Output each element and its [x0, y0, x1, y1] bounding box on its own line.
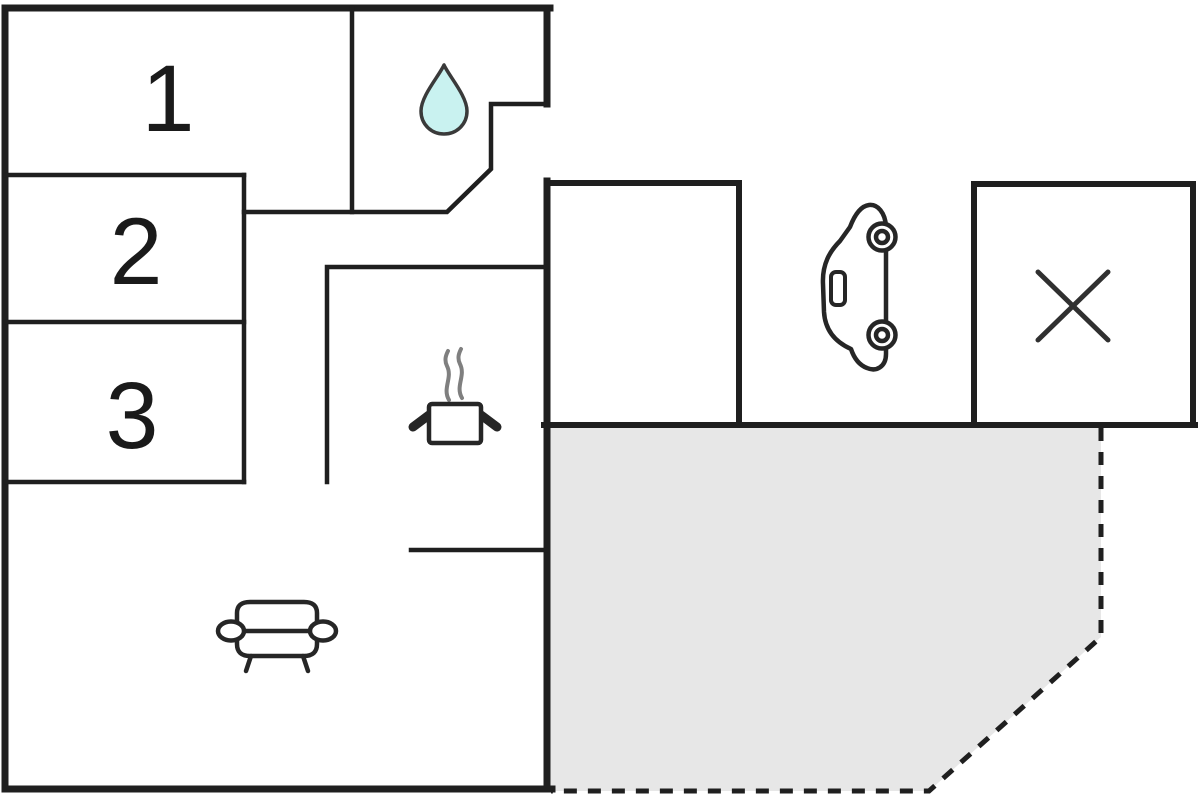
cooking-pot-icon: [413, 349, 497, 443]
hall-vestibule-wall: [244, 104, 546, 212]
terrace-fill: [549, 426, 1101, 791]
sofa-leg-left: [246, 656, 251, 671]
car-wheel-front-hub: [876, 231, 888, 243]
steam-left: [445, 351, 449, 400]
x-mark-icon: [1038, 272, 1108, 340]
pot-handle-left: [413, 415, 429, 427]
terrace-area: [549, 426, 1101, 791]
room-labels: 1 2 3: [106, 46, 195, 469]
pot-handle-right: [481, 415, 497, 427]
steam-right: [458, 349, 462, 398]
car-icon: [823, 205, 896, 369]
carport-room-walls: [547, 183, 739, 423]
pot-body: [429, 404, 481, 443]
sofa-seat: [237, 631, 317, 656]
room-1-label: 1: [142, 46, 195, 152]
outbuilding-walls: [974, 184, 1193, 425]
sofa-leg-right: [303, 656, 308, 671]
kitchen-partition-wall: [327, 267, 546, 482]
room-3-label: 3: [106, 363, 159, 469]
sofa-armrest-left: [218, 622, 244, 641]
sofa-armrest-right: [310, 622, 336, 641]
sofa-icon: [218, 602, 336, 671]
car-window: [831, 272, 845, 305]
sofa-backrest: [237, 602, 317, 631]
car-wheel-rear-hub: [876, 329, 888, 341]
water-drop-shape: [421, 65, 467, 134]
room-2-label: 2: [110, 199, 163, 305]
floor-plan-canvas: 1 2 3: [0, 0, 1200, 800]
exterior-wall-outline: [5, 8, 552, 789]
floor-plan: 1 2 3: [0, 0, 1200, 800]
water-drop-icon: [421, 65, 467, 134]
